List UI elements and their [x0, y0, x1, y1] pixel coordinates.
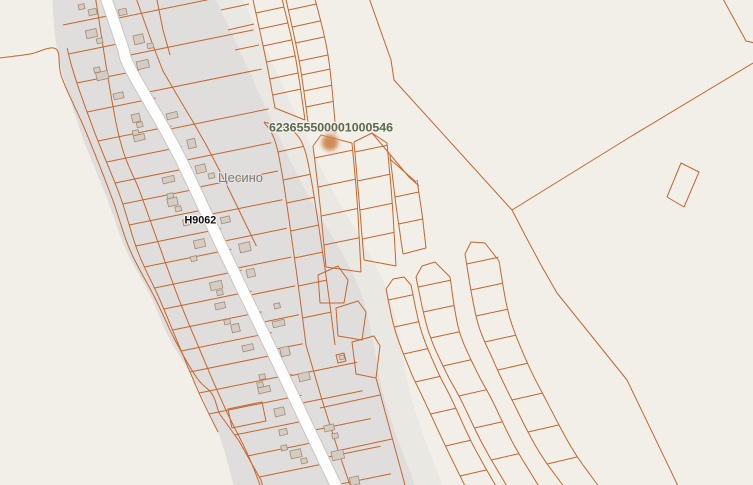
svg-text:Н9062: Н9062: [185, 215, 217, 227]
svg-text:Цесино: Цесино: [218, 170, 263, 185]
